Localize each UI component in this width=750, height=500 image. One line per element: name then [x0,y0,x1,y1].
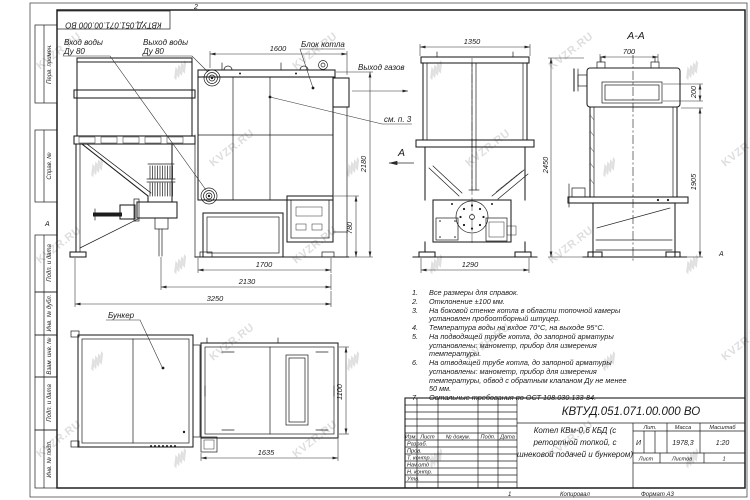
side-view: 1350 1290 А [389,37,537,273]
note-item: 6.На отводящей трубе котла, до запорной … [412,359,628,394]
row-nachotd: Нач.отд [407,463,429,469]
dim-1600: 1600 [270,44,287,53]
mass-value: 1978,3 [672,440,694,447]
margin-label: Взам. инв. № [46,337,53,375]
watermark-logo-icon [86,157,108,178]
note-item: 3.На боковой стенке котла в области топо… [412,307,628,325]
title-block: КВТУД.051.071.00.000 ВО Котел КВм-0,6 КБ… [405,398,745,488]
margin-label: Перв. примен. [47,44,53,84]
margin-label: Инв. № подл. [46,440,53,477]
note-item: 5.На подводящей трубе котла, до запорной… [412,333,628,359]
boiler-block-label: Блок котла [301,40,345,49]
watermark-logo-icon [342,351,364,372]
water-inlet-label: Вход воды [64,38,103,47]
scale-value: 1:20 [716,440,730,447]
drawing-sheet: KVZR.RUKVZR.RUKVZR.RUKVZR.RUKVZR.RUKVZR.… [0,0,750,500]
watermark-text: KVZR.RU [463,127,512,169]
row-prov: Пров. [407,449,422,455]
watermark-text: KVZR.RU [546,224,595,266]
dim-1905: 1905 [689,173,698,190]
plan-view: Бункер 1635 1100 [71,311,349,461]
watermark-text: KVZR.RU [546,30,595,72]
mass-label: Масса [675,425,692,431]
col-data: Дата [499,435,515,441]
col-podp: Подп. [481,435,496,441]
lit-label: Лит. [642,425,656,431]
scale-label: Масштаб [709,425,736,431]
sheets-label: Листов [671,457,692,463]
col-ndokum: № докум. [446,435,471,441]
watermark-logo-icon [169,254,191,275]
title-name-line3: шнековой подачей и бункером) [517,450,633,459]
watermark-text: KVZR.RU [207,321,256,363]
dim-2130: 2130 [238,277,256,286]
dim-1100: 1100 [335,383,344,400]
dim-1350: 1350 [464,37,481,46]
drawing-canvas: KVZR.RUKVZR.RUKVZR.RUKVZR.RUKVZR.RUKVZR.… [0,0,750,500]
front-dimensions: 1600 2180 780 1700 2130 3250 [75,44,373,307]
row-razrab: Разраб. [407,442,427,448]
dim-1290: 1290 [462,260,479,269]
title-name-line1: Котел КВм-0,6 КБД (с [534,426,617,435]
dim-2450: 2450 [541,156,550,174]
watermark-logo-icon [598,157,620,178]
water-inlet-dn: Ду 80 [63,47,85,56]
sheet-frame: Перв. примен. Справ. № Подп. и дата Инв.… [30,3,747,498]
row-utv: Утв. [406,477,420,483]
technical-notes: 1.Все размеры для справок. 2.Отклонение … [412,289,628,403]
dim-1635: 1635 [258,448,275,457]
watermark-logo-icon [681,60,703,81]
watermark-text: KVZR.RU [207,127,256,169]
row-tkontr: Т. контр. [407,456,431,462]
watermark-text: KVZR.RU [290,418,339,460]
watermark-layer: KVZR.RUKVZR.RUKVZR.RUKVZR.RUKVZR.RUKVZR.… [34,30,750,468]
title-name-line2: ретортной топкой, с [532,438,616,447]
plan-dimensions: 1635 1100 [201,347,349,461]
dim-1700: 1700 [256,260,273,269]
watermark-text: KVZR.RU [290,224,339,266]
dim-700: 700 [623,47,636,56]
sheets-value: 1 [722,457,725,463]
watermark-logo-icon [86,351,108,372]
dim-780: 780 [345,221,354,234]
watermark-text: KVZR.RU [34,418,83,460]
zone-number-bottom: 1 [508,492,511,498]
lit-value: И [636,440,642,447]
water-outlet-dn: Ду 80 [142,47,164,56]
dim-2180: 2180 [359,155,368,173]
section-dimensions: 700 2450 200 1905 [541,47,703,257]
water-outlet-label: Выход воды [143,38,188,47]
zone-letter-left: А [44,221,50,228]
see-note-label: см. п. 3 [384,115,412,124]
copied-label: Копировал [560,492,590,498]
gas-outlet-label: Выход газов [358,63,405,72]
section-title: А-А [626,30,645,42]
format-label: Формат А3 [641,492,674,498]
zone-number-top: 2 [193,4,198,11]
watermark-text: KVZR.RU [290,30,339,72]
zone-letter-right: А [718,251,724,258]
margin-label: Инв. № дубл. [46,295,53,332]
dim-200: 200 [689,85,698,99]
bunker-label: Бункер [108,311,135,320]
margin-label: Подп. и дата [47,244,53,282]
section-arrow: А [389,147,414,163]
watermark-logo-icon [169,60,191,81]
note-item: 7.Остальные требования по ОСТ 108.030.13… [412,394,628,403]
col-izm: Изм. [405,435,417,441]
watermark-logo-icon [169,448,191,469]
row-nkontr: Н. контр. [407,470,432,476]
margin-label: Подп. и дата [47,384,53,422]
dim-3250: 3250 [207,294,224,303]
top-stamp-code: КВТУД.051.071.00.000 ВО [65,21,161,30]
section-view: А-А 700 [541,30,703,262]
margin-label: Справ. № [46,152,53,180]
sheet-label: Лист [638,457,654,463]
front-view: Вход воды Ду 80 Выход воды Ду 80 Блок ко… [63,38,412,307]
title-designation: КВТУД.051.071.00.000 ВО [562,406,701,418]
section-arrow-label: А [397,147,405,159]
col-list: Лист [419,435,435,441]
